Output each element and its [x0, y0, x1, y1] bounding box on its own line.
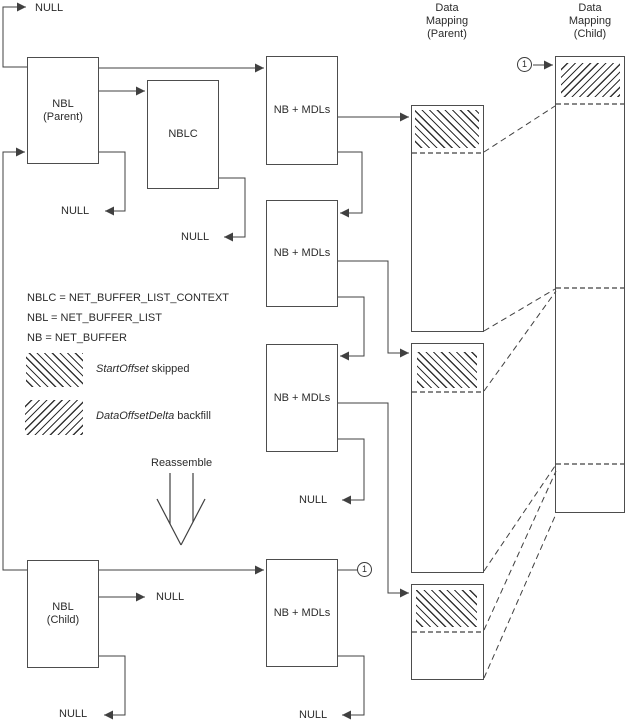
edge-nb4-to-null — [338, 656, 364, 715]
map-diagonal-5 — [484, 471, 556, 630]
edge-nb3-to-mapping3 — [338, 403, 409, 593]
legend-swatch-backfill-icon — [25, 400, 83, 435]
legend-desc-startoffset: skipped — [152, 363, 190, 375]
startoffset-hatch-parent-3 — [416, 590, 477, 627]
edge-nb2-to-mapping2 — [338, 261, 409, 353]
connector-badge-1-source: 1 — [357, 562, 372, 577]
legend-def-nb: NB = NET_BUFFER — [27, 332, 127, 344]
nb-mdls-label-2: NB + MDLs — [266, 200, 338, 307]
nb-mdls-label-3: NB + MDLs — [266, 344, 338, 452]
nbl-child-label: NBL (Child) — [27, 560, 99, 668]
legend-item-startoffset: StartOffsetskipped — [96, 363, 190, 375]
legend-swatch-startoffset-icon — [26, 353, 83, 387]
startoffset-hatch-parent-2 — [417, 352, 477, 388]
null-label-child-bottom: NULL — [59, 708, 87, 720]
reassemble-label: Reassemble — [151, 457, 212, 469]
nb-mdls-label-1: NB + MDLs — [266, 56, 338, 165]
map-diagonal-2 — [484, 289, 555, 331]
edge-nbl-child-to-null-bottom — [99, 656, 125, 715]
edge-nbl-child-to-nbl-parent — [3, 152, 27, 570]
legend-def-nblc: NBLC = NET_BUFFER_LIST_CONTEXT — [27, 292, 229, 304]
edge-nb3-to-null — [338, 439, 364, 500]
nbl-parent-label: NBL (Parent) — [27, 57, 99, 164]
edge-nblc-to-null — [219, 178, 245, 237]
nblc-label: NBLC — [147, 80, 219, 189]
map-diagonal-1 — [484, 106, 555, 152]
null-label-nb3: NULL — [299, 494, 327, 506]
parent-mapping-title: Data Mapping (Parent) — [405, 2, 489, 41]
legend-desc-backfill: backfill — [177, 410, 211, 422]
connector-badge-1-target: 1 — [517, 57, 532, 72]
reassemble-arrow-icon — [157, 473, 205, 545]
null-label-parent-bottom: NULL — [61, 205, 89, 217]
edge-nb2-to-nb3 — [338, 297, 364, 356]
null-label-parent-top: NULL — [35, 2, 63, 14]
legend-def-nbl: NBL = NET_BUFFER_LIST — [27, 312, 162, 324]
legend-term-startoffset: StartOffset — [96, 363, 149, 375]
edge-nb1-to-nb2 — [338, 152, 362, 213]
nbl-fragmentation-diagram: 1 1 Data Mapping (Parent) Data Mapping (… — [0, 0, 628, 723]
edge-nbl-parent-to-null-top — [3, 7, 27, 67]
map-diagonal-3 — [484, 291, 556, 391]
edge-nbl-parent-to-null-bottom — [99, 152, 125, 211]
nb-mdls-label-4: NB + MDLs — [266, 559, 338, 667]
null-label-child-next: NULL — [156, 591, 184, 603]
null-label-nb4: NULL — [299, 709, 327, 721]
startoffset-hatch-parent-1 — [415, 110, 479, 148]
backfill-hatch-child — [561, 63, 620, 97]
map-diagonal-6 — [484, 514, 556, 678]
child-mapping-title: Data Mapping (Child) — [548, 2, 628, 41]
legend-term-backfill: DataOffsetDelta — [96, 410, 174, 422]
legend-item-backfill: DataOffsetDeltabackfill — [96, 410, 211, 422]
child-mapping-box — [555, 56, 625, 513]
map-diagonal-4 — [484, 466, 555, 571]
null-label-nblc: NULL — [181, 231, 209, 243]
